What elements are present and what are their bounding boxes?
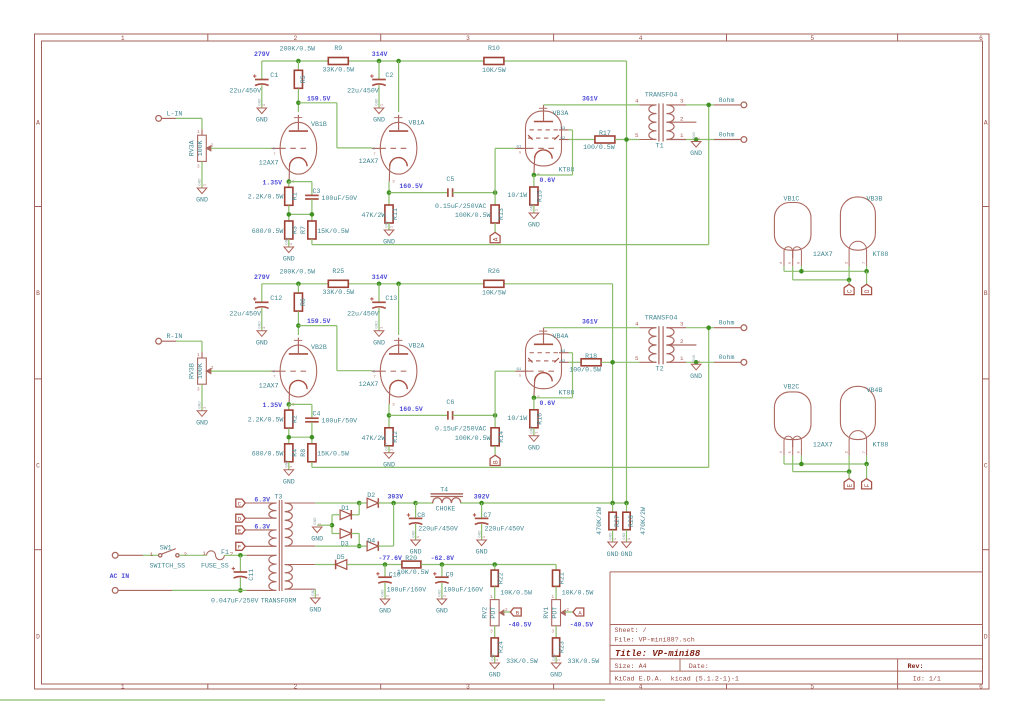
svg-text:R14: R14 [498,431,505,443]
svg-text:12AX7: 12AX7 [259,160,279,167]
svg-text:GND: GND [256,339,268,346]
svg-text:12AX7: 12AX7 [813,251,833,258]
svg-text:G1: G1 [517,368,522,372]
svg-text:0ohm: 0ohm [719,354,735,361]
svg-text:2: 2 [845,451,849,453]
svg-text:VB1A: VB1A [409,120,425,127]
svg-text:GND: GND [531,203,535,211]
svg-text:R15: R15 [537,190,544,202]
svg-text:7: 7 [373,376,375,380]
svg-text:5: 5 [789,262,793,264]
svg-text:GND: GND [528,444,540,451]
svg-text:R16: R16 [537,413,544,425]
svg-text:GND: GND [283,478,295,485]
svg-text:C2: C2 [385,72,393,79]
svg-text:7: 7 [863,262,867,264]
svg-text:SW1: SW1 [160,544,172,551]
svg-text:POT: POT [490,607,497,619]
svg-text:SWITCH_SS: SWITCH_SS [150,562,186,569]
svg-text:GND: GND [382,589,386,597]
svg-text:D1: D1 [341,505,349,512]
svg-text:3: 3 [552,629,555,634]
svg-text:GND: GND [199,178,203,186]
svg-text:6.3V: 6.3V [254,523,270,530]
svg-text:2: 2 [680,115,684,122]
svg-text:GND: GND [259,98,263,106]
svg-text:GND: GND [478,530,482,538]
svg-text:C5: C5 [446,176,454,183]
svg-text:5: 5 [635,355,639,362]
svg-text:0.6V: 0.6V [540,400,556,407]
svg-text:D: D [864,289,871,293]
svg-text:A: A [36,120,40,127]
svg-text:33K/0.5W: 33K/0.5W [322,66,354,73]
svg-text:2.2K/0.5W: 2.2K/0.5W [248,194,284,201]
svg-text:6: 6 [979,683,983,690]
svg-text:D2: D2 [367,492,375,499]
svg-text:Date:: Date: [689,663,709,671]
svg-text:1: 1 [197,353,200,358]
svg-text:160.5V: 160.5V [399,406,423,413]
svg-text:GND: GND [376,98,380,106]
svg-text:12AX7: 12AX7 [359,158,379,165]
svg-text:47K/2W: 47K/2W [362,212,386,219]
svg-text:R27: R27 [614,515,621,527]
svg-text:GND: GND [439,589,443,597]
svg-text:22u/450V: 22u/450V [229,310,261,317]
svg-text:7: 7 [273,376,275,380]
svg-text:4: 4 [639,35,643,42]
svg-text:1.35V: 1.35V [263,179,283,186]
svg-text:279V: 279V [254,51,270,58]
svg-text:G2: G2 [561,360,566,364]
svg-text:100K: 100K [197,140,204,156]
svg-text:33K/0.5W: 33K/0.5W [322,289,354,296]
svg-text:1.35V: 1.35V [263,402,283,409]
svg-text:GND: GND [609,532,613,540]
svg-text:47K/2W: 47K/2W [362,435,386,442]
svg-text:B: B [984,290,988,297]
svg-text:200K/0.5W: 200K/0.5W [280,268,316,275]
svg-text:F: F [864,483,871,487]
svg-text:GND: GND [386,443,390,451]
svg-text:1: 1 [680,132,684,139]
svg-text:RV1: RV1 [543,607,550,619]
svg-text:GND: GND [314,517,318,525]
svg-text:GND: GND [550,672,562,679]
svg-text:1: 1 [121,35,125,42]
svg-text:GND: GND [621,551,633,558]
svg-text:TRANSFO4: TRANSFO4 [645,315,678,323]
svg-text:C7: C7 [483,512,491,519]
svg-text:KiCad E.D.A. kicad (5.1.2-1)-: KiCad E.D.A. kicad (5.1.2-1)-1 [615,675,739,683]
svg-text:R9: R9 [334,45,342,52]
svg-text:GND: GND [693,131,697,139]
svg-text:GND: GND [309,607,321,614]
svg-text:393V: 393V [388,493,404,500]
svg-text:R20: R20 [405,555,417,562]
svg-text:470K/2W: 470K/2W [596,507,603,535]
svg-text:GND: GND [553,653,557,661]
svg-text:File: VP-mini88?.sch: File: VP-mini88?.sch [615,637,695,645]
svg-text:GND: GND [528,222,540,229]
svg-text:680/0.5W: 680/0.5W [252,451,284,458]
svg-text:0.047uF/250V: 0.047uF/250V [211,597,259,604]
svg-text:3: 3 [490,629,493,634]
svg-text:10K/5W: 10K/5W [482,67,506,74]
svg-text:R13: R13 [498,208,505,220]
svg-text:361V: 361V [582,318,598,325]
svg-text:2: 2 [294,35,298,42]
svg-text:C10: C10 [389,571,401,578]
svg-text:1: 1 [121,683,125,690]
svg-text:R5: R5 [300,75,307,83]
svg-text:314V: 314V [372,51,388,58]
svg-text:4: 4 [780,262,784,264]
svg-text:8ohm: 8ohm [719,320,735,327]
svg-text:4: 4 [635,320,639,327]
svg-text:-40.5V: -40.5V [570,622,594,629]
svg-text:15K/0.5W: 15K/0.5W [317,451,349,458]
svg-text:C: C [984,463,988,470]
svg-text:Rev:: Rev: [908,663,924,671]
svg-text:R6: R6 [300,298,307,306]
svg-text:R12: R12 [392,431,399,443]
svg-text:2: 2 [211,143,214,148]
svg-text:GND: GND [383,239,395,246]
svg-text:VB1B: VB1B [311,121,327,128]
svg-text:C1: C1 [270,72,278,79]
svg-text:22u/450V: 22u/450V [229,88,261,95]
svg-text:VB2B: VB2B [311,344,327,351]
svg-text:2: 2 [294,683,298,690]
svg-text:GND: GND [256,117,268,124]
svg-text:3: 3 [197,165,200,170]
svg-text:2.2K/0.5W: 2.2K/0.5W [248,417,284,424]
svg-text:R8: R8 [300,449,307,457]
svg-text:100uF/160V: 100uF/160V [387,587,427,594]
svg-text:GND: GND [623,532,627,540]
svg-text:3: 3 [680,98,684,105]
svg-text:GND: GND [376,321,380,329]
svg-text:VB1C: VB1C [784,196,800,203]
svg-text:A: A [493,237,500,241]
svg-text:10/1W: 10/1W [507,192,527,199]
svg-text:314V: 314V [372,274,388,281]
svg-text:3: 3 [466,35,470,42]
svg-text:GND: GND [412,530,416,538]
svg-text:R25: R25 [332,268,344,275]
svg-text:100K/0.5W: 100K/0.5W [455,212,491,219]
svg-text:GND: GND [196,197,208,204]
svg-text:R26: R26 [488,268,500,275]
svg-text:VB4B: VB4B [867,387,883,394]
svg-text:100/0.5W: 100/0.5W [569,367,601,374]
svg-text:R21: R21 [559,572,566,584]
svg-text:G2: G2 [561,137,566,141]
svg-text:C: C [847,289,854,293]
svg-text:Size: A4: Size: A4 [615,663,647,671]
svg-text:6: 6 [979,35,983,42]
svg-text:CHOKE: CHOKE [436,506,456,513]
svg-text:C3: C3 [313,188,321,195]
svg-text:GND: GND [199,401,203,409]
svg-text:4: 4 [639,683,643,690]
svg-text:10K/0.5W: 10K/0.5W [562,590,594,597]
svg-text:VB2C: VB2C [784,384,800,391]
svg-text:5: 5 [810,35,814,42]
svg-text:R1: R1 [292,192,299,200]
svg-text:L-IN: L-IN [167,110,183,117]
svg-text:2: 2 [680,338,684,345]
svg-text:T4: T4 [440,487,448,494]
svg-text:0.15uF/250VAC: 0.15uF/250VAC [435,203,486,210]
svg-text:5: 5 [810,683,814,690]
svg-text:B: B [493,460,500,464]
svg-text:470K/2W: 470K/2W [640,507,647,535]
svg-text:R28: R28 [628,515,635,527]
svg-text:A: A [984,120,988,127]
svg-text:D: D [984,634,988,641]
svg-text:33K/0.5W: 33K/0.5W [506,658,538,665]
svg-text:GND: GND [489,672,501,679]
svg-text:C8: C8 [417,512,425,519]
svg-text:D5: D5 [337,554,345,561]
svg-text:10K/5W: 10K/5W [482,290,506,297]
svg-text:8ohm: 8ohm [719,97,735,104]
svg-text:R10: R10 [488,45,500,52]
svg-text:GND: GND [386,220,390,228]
svg-text:0.15uF/250VAC: 0.15uF/250VAC [435,426,486,433]
svg-text:220uF/450V: 220uF/450V [485,526,525,533]
svg-text:GND: GND [373,117,385,124]
svg-text:33K/0.5W: 33K/0.5W [568,658,600,665]
svg-text:KT88: KT88 [873,442,889,449]
svg-text:12AX7: 12AX7 [259,382,279,389]
svg-text:C6: C6 [446,399,454,406]
svg-text:392V: 392V [474,493,490,500]
svg-text:-40.5V: -40.5V [508,622,532,629]
svg-text:100K/0.5W: 100K/0.5W [455,435,491,442]
svg-text:T3: T3 [275,494,283,501]
svg-text:2: 2 [211,366,214,371]
svg-text:GND: GND [531,426,535,434]
svg-text:C9: C9 [446,571,454,578]
svg-text:1: 1 [552,595,555,600]
svg-text:TRANSFO4: TRANSFO4 [645,92,678,100]
svg-text:GND: GND [311,536,323,543]
svg-text:100uF/50V: 100uF/50V [322,195,358,202]
svg-text:R-IN: R-IN [167,333,183,340]
svg-text:4: 4 [635,98,639,105]
svg-text:R11: R11 [392,208,399,220]
svg-text:FUSE_SS: FUSE_SS [201,562,229,569]
svg-text:KT88: KT88 [873,251,889,258]
svg-text:VB4A: VB4A [553,333,569,340]
svg-text:159.5V: 159.5V [307,318,331,325]
svg-text:7: 7 [373,153,375,157]
svg-text:-62.8V: -62.8V [431,555,455,562]
svg-text:7: 7 [863,451,867,453]
svg-text:R23: R23 [559,641,566,653]
svg-text:9: 9 [798,262,802,264]
svg-text:0ohm: 0ohm [719,131,735,138]
svg-text:10/1W: 10/1W [507,415,527,422]
svg-text:G3: G3 [561,127,566,131]
svg-text:E: E [847,483,854,487]
svg-text:C13: C13 [385,295,397,302]
svg-text:6.3V: 6.3V [254,497,270,504]
svg-text:100uF/50V: 100uF/50V [322,418,358,425]
svg-text:3: 3 [466,683,470,690]
svg-text:Title: VP-mini88: Title: VP-mini88 [615,649,701,659]
svg-text:3: 3 [197,387,200,392]
svg-text:5: 5 [635,132,639,139]
svg-text:2: 2 [845,262,849,264]
svg-text:R4: R4 [292,449,299,457]
svg-text:GND: GND [436,608,448,615]
svg-text:100/0.5W: 100/0.5W [583,144,615,151]
svg-text:RV3A: RV3A [189,140,196,156]
svg-text:100uF/160V: 100uF/160V [444,587,484,594]
svg-text:VB3A: VB3A [553,110,569,117]
svg-text:220uF/450V: 220uF/450V [418,526,458,533]
svg-text:G3: G3 [561,350,566,354]
svg-text:1: 1 [490,595,493,600]
svg-text:POT: POT [552,607,559,619]
svg-text:9: 9 [798,451,802,453]
svg-text:4: 4 [780,451,784,453]
svg-text:361V: 361V [582,96,598,103]
svg-text:3: 3 [680,320,684,327]
svg-text:680/0.5W: 680/0.5W [252,228,284,235]
svg-text:GND: GND [607,551,619,558]
svg-text:G1: G1 [517,145,522,149]
svg-text:T2: T2 [656,365,664,373]
svg-text:C: C [36,463,40,470]
svg-text:7: 7 [273,153,275,157]
svg-text:1: 1 [150,551,154,558]
svg-text:0.6V: 0.6V [540,177,556,184]
svg-text:GND: GND [476,549,488,556]
svg-text:279V: 279V [254,274,270,281]
svg-text:GND: GND [379,608,391,615]
svg-text:GND: GND [286,460,290,468]
svg-text:TRANSFORM: TRANSFORM [261,597,297,604]
svg-text:VB2A: VB2A [409,342,425,349]
svg-text:D4: D4 [367,537,375,544]
svg-text:B: B [36,290,40,297]
svg-text:R22: R22 [497,572,504,584]
svg-text:R17: R17 [599,130,611,137]
svg-text:200K/0.5W: 200K/0.5W [280,46,316,53]
svg-text:12AX7: 12AX7 [813,442,833,449]
svg-text:GND: GND [491,653,495,661]
svg-text:160.5V: 160.5V [399,183,423,190]
svg-text:R18: R18 [585,353,597,360]
svg-text:RV2: RV2 [481,607,488,619]
svg-text:R7: R7 [300,226,307,234]
svg-text:1: 1 [202,550,206,557]
svg-text:Id: 1/1: Id: 1/1 [913,675,941,683]
svg-text:GND: GND [373,339,385,346]
svg-text:22u/450V: 22u/450V [347,88,379,95]
svg-text:-77.6V: -77.6V [379,555,403,562]
svg-text:GND: GND [283,256,295,263]
svg-text:100K: 100K [197,363,204,379]
svg-text:AC IN: AC IN [110,573,130,580]
svg-text:15K/0.5W: 15K/0.5W [317,228,349,235]
svg-text:10K/0.5W: 10K/0.5W [397,569,429,576]
svg-text:F: F [238,544,241,551]
svg-text:GND: GND [383,461,395,468]
svg-text:159.5V: 159.5V [307,95,331,102]
svg-text:22u/450V: 22u/450V [347,310,379,317]
svg-text:10K/0.5W: 10K/0.5W [500,590,532,597]
svg-text:Sheet: /: Sheet: / [615,627,647,635]
svg-text:C11: C11 [248,569,255,581]
svg-text:C4: C4 [313,411,321,418]
svg-text:C12: C12 [270,295,282,302]
svg-text:GND: GND [693,354,697,362]
svg-text:GND: GND [312,588,316,596]
svg-text:R3: R3 [292,226,299,234]
svg-text:1: 1 [680,355,684,362]
svg-text:VB3B: VB3B [867,196,883,203]
svg-text:D: D [36,634,40,641]
svg-text:GND: GND [259,321,263,329]
svg-text:GND: GND [196,419,208,426]
svg-text:R2: R2 [292,415,299,423]
svg-text:RV3B: RV3B [189,363,196,379]
svg-text:2: 2 [230,550,234,557]
svg-text:GND: GND [286,237,290,245]
svg-text:T1: T1 [656,143,664,151]
svg-text:5: 5 [789,451,793,453]
svg-text:1: 1 [197,130,200,135]
svg-text:R24: R24 [497,641,504,653]
svg-text:GND: GND [690,150,702,157]
svg-text:GND: GND [690,373,702,380]
svg-text:12AX7: 12AX7 [359,381,379,388]
